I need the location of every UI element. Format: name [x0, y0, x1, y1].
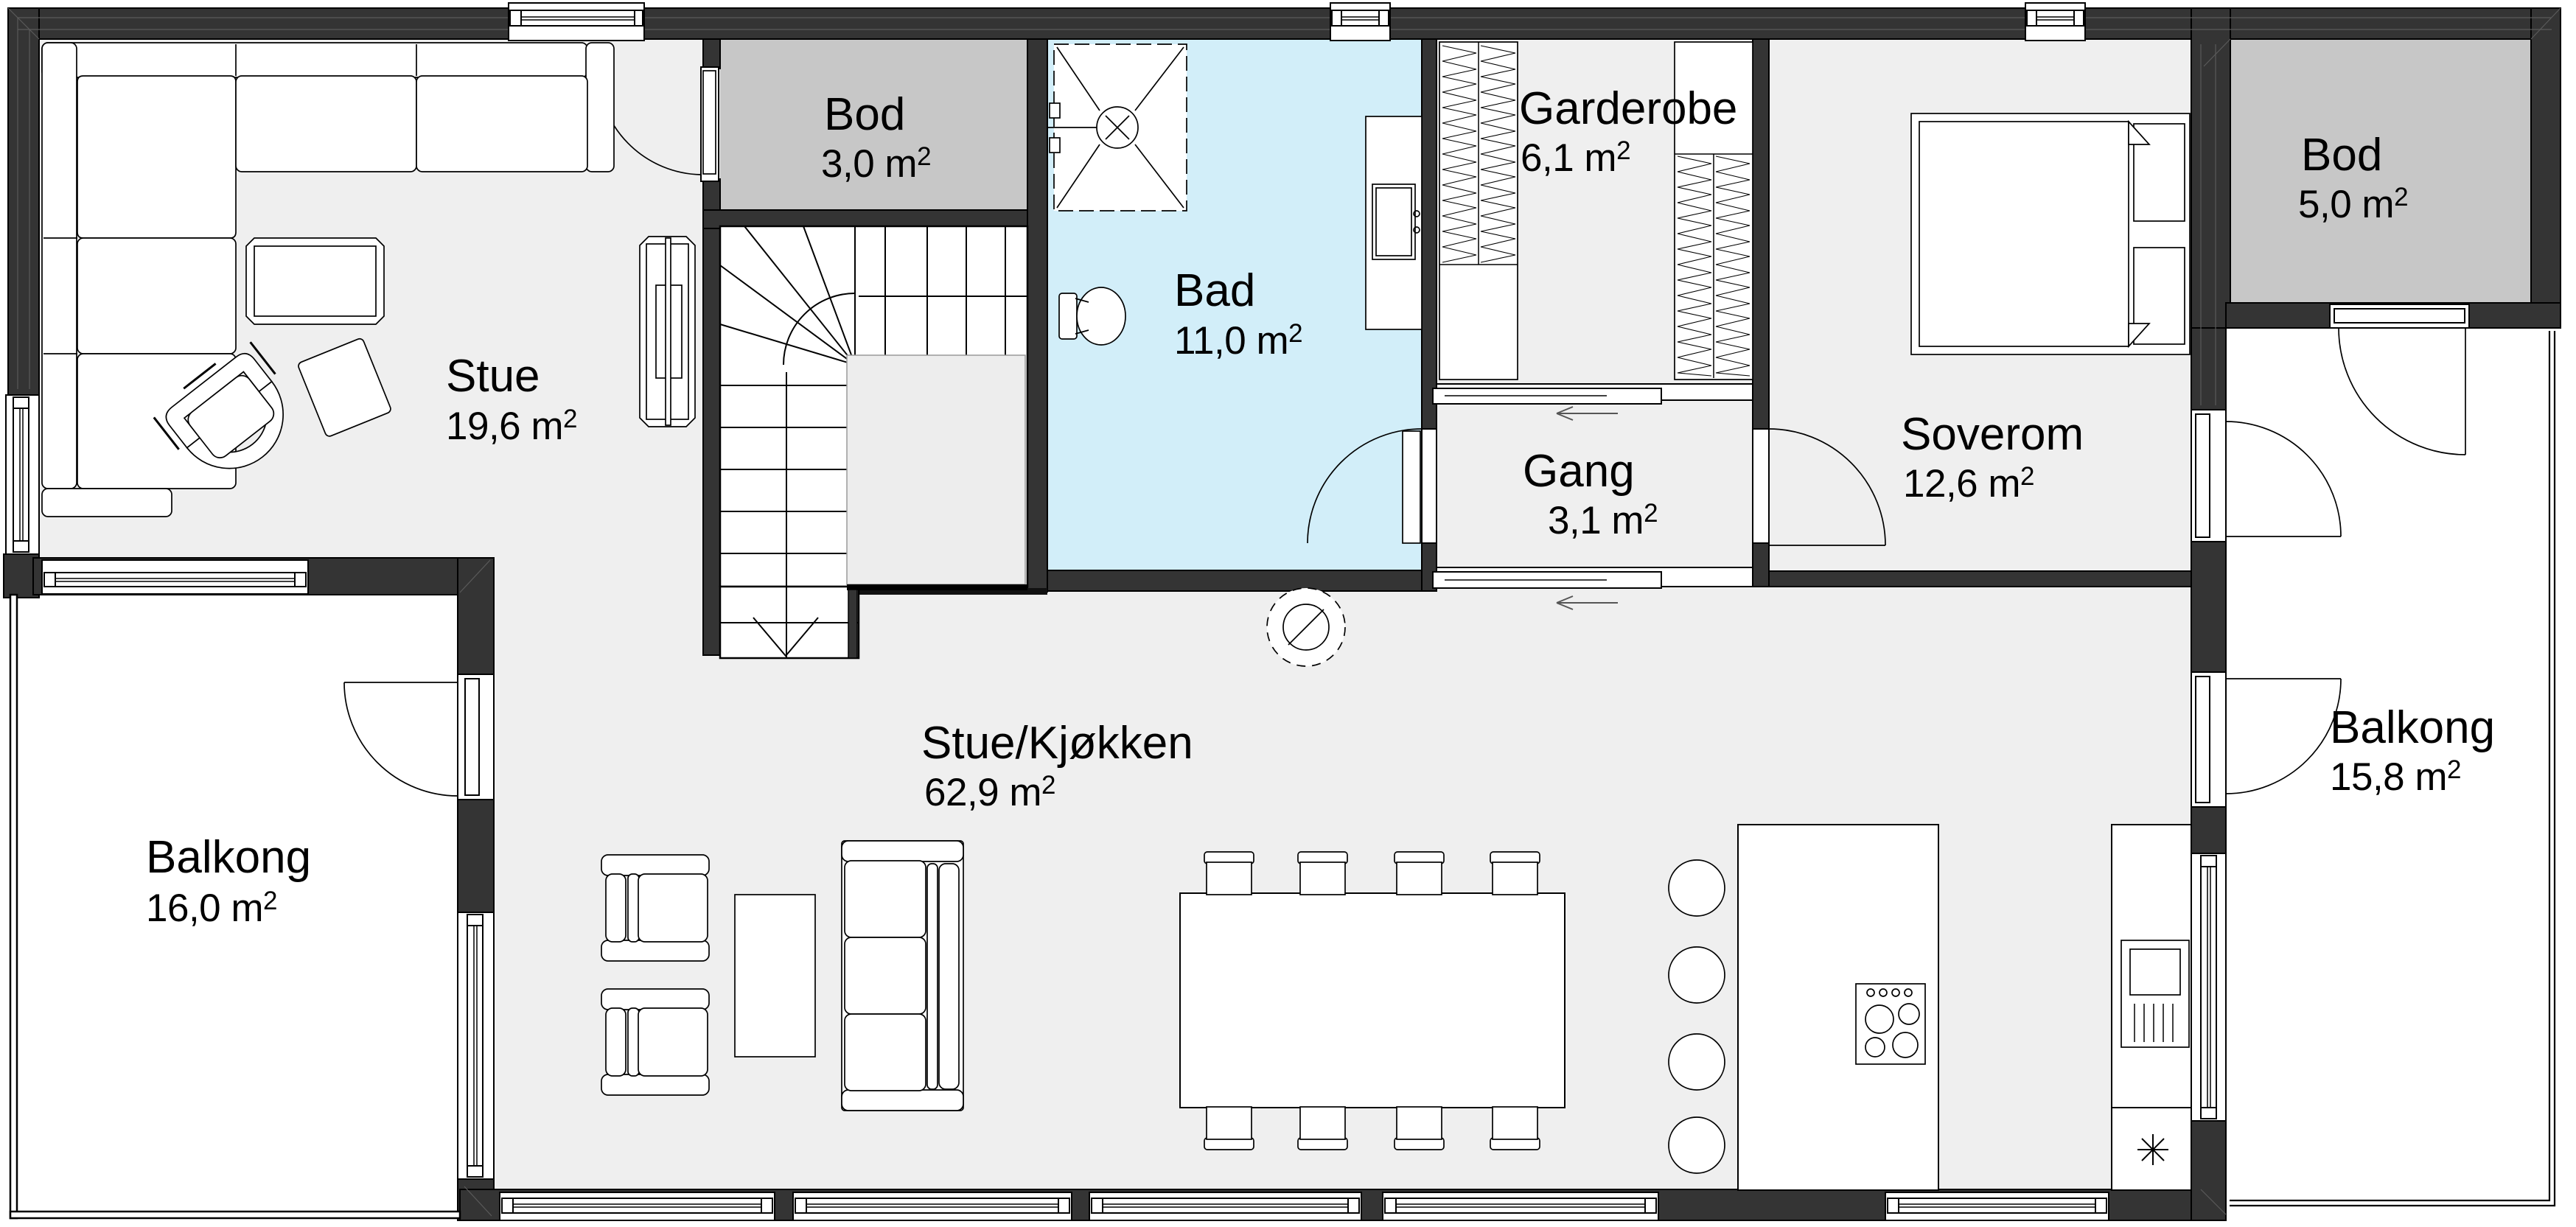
- svg-text:Garderobe: Garderobe: [1519, 83, 1737, 134]
- svg-text:Balkong: Balkong: [146, 832, 311, 883]
- svg-text:15,8 m2: 15,8 m2: [2330, 755, 2461, 799]
- svg-text:Bod: Bod: [824, 89, 905, 140]
- svg-text:3,0 m2: 3,0 m2: [821, 142, 931, 186]
- svg-text:Soverom: Soverom: [1901, 409, 2084, 460]
- svg-text:11,0 m2: 11,0 m2: [1174, 319, 1302, 363]
- svg-text:62,9 m2: 62,9 m2: [924, 771, 1055, 814]
- svg-text:Bad: Bad: [1174, 265, 1255, 316]
- svg-text:Stue/Kjøkken: Stue/Kjøkken: [921, 718, 1193, 769]
- svg-text:3,1 m2: 3,1 m2: [1548, 499, 1658, 542]
- svg-text:6,1 m2: 6,1 m2: [1521, 136, 1630, 180]
- svg-text:Stue: Stue: [446, 351, 540, 402]
- svg-text:16,0 m2: 16,0 m2: [146, 887, 277, 930]
- svg-text:Gang: Gang: [1523, 446, 1635, 497]
- svg-text:Balkong: Balkong: [2330, 702, 2495, 753]
- svg-text:5,0 m2: 5,0 m2: [2298, 183, 2408, 226]
- svg-text:19,6 m2: 19,6 m2: [446, 405, 577, 448]
- svg-text:12,6 m2: 12,6 m2: [1903, 462, 2034, 506]
- svg-text:Bod: Bod: [2301, 130, 2382, 181]
